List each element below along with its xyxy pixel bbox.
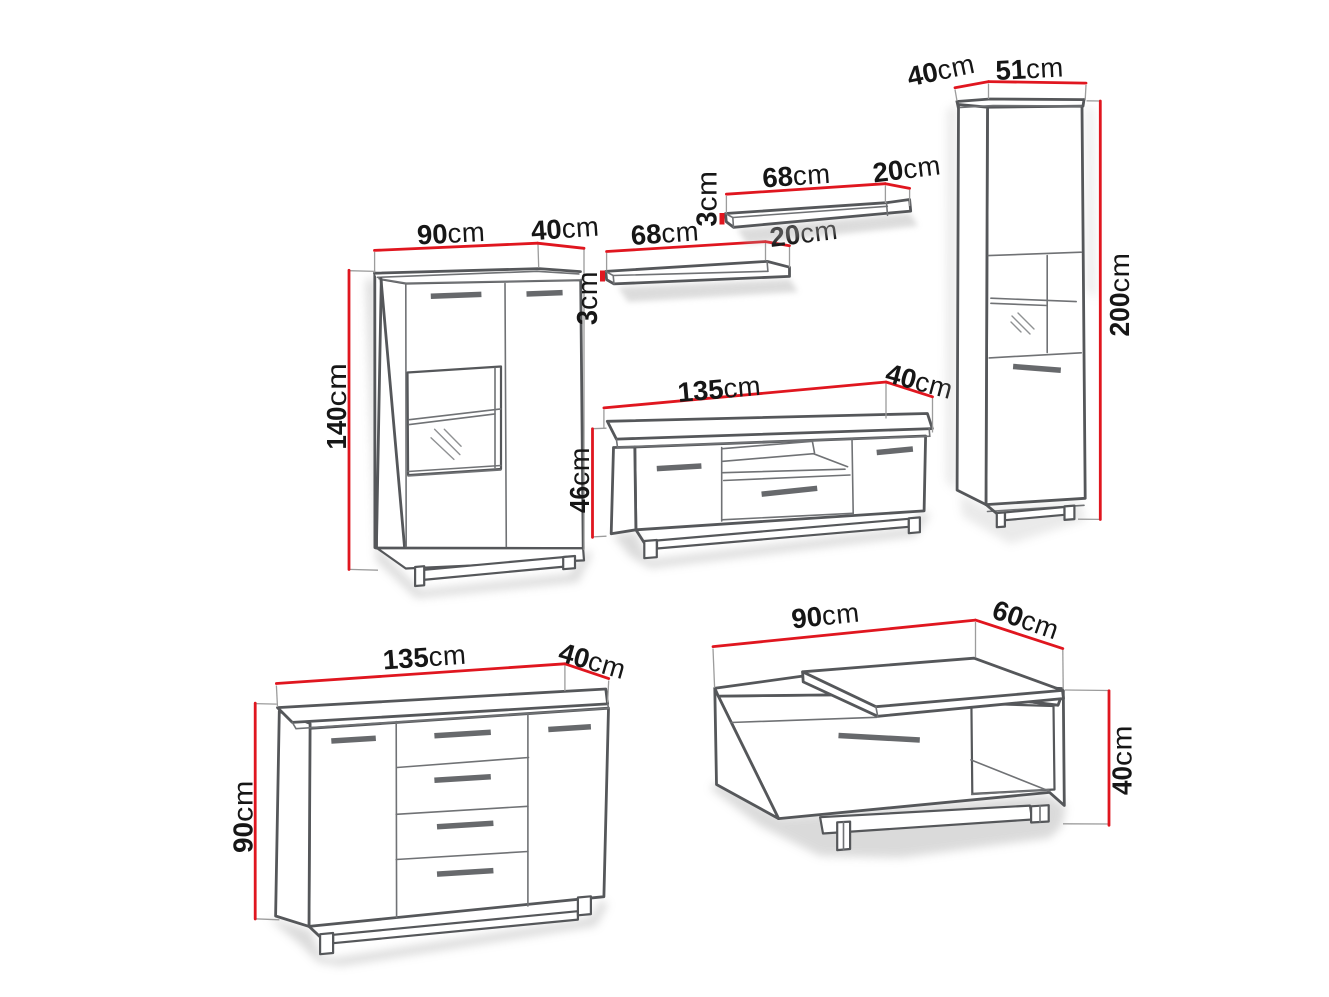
- svg-text:3cm: 3cm: [572, 271, 604, 325]
- svg-text:90cm: 90cm: [228, 780, 259, 853]
- svg-text:40cm: 40cm: [530, 211, 600, 247]
- svg-text:3cm: 3cm: [692, 171, 724, 227]
- svg-text:90cm: 90cm: [416, 216, 486, 251]
- svg-text:68cm: 68cm: [761, 158, 831, 194]
- svg-text:140cm: 140cm: [321, 363, 352, 450]
- svg-text:200cm: 200cm: [1104, 253, 1135, 337]
- svg-text:135cm: 135cm: [382, 639, 468, 676]
- svg-text:51cm: 51cm: [995, 51, 1065, 86]
- svg-text:46cm: 46cm: [564, 447, 595, 513]
- svg-text:40cm: 40cm: [1107, 725, 1138, 795]
- svg-text:68cm: 68cm: [630, 215, 700, 251]
